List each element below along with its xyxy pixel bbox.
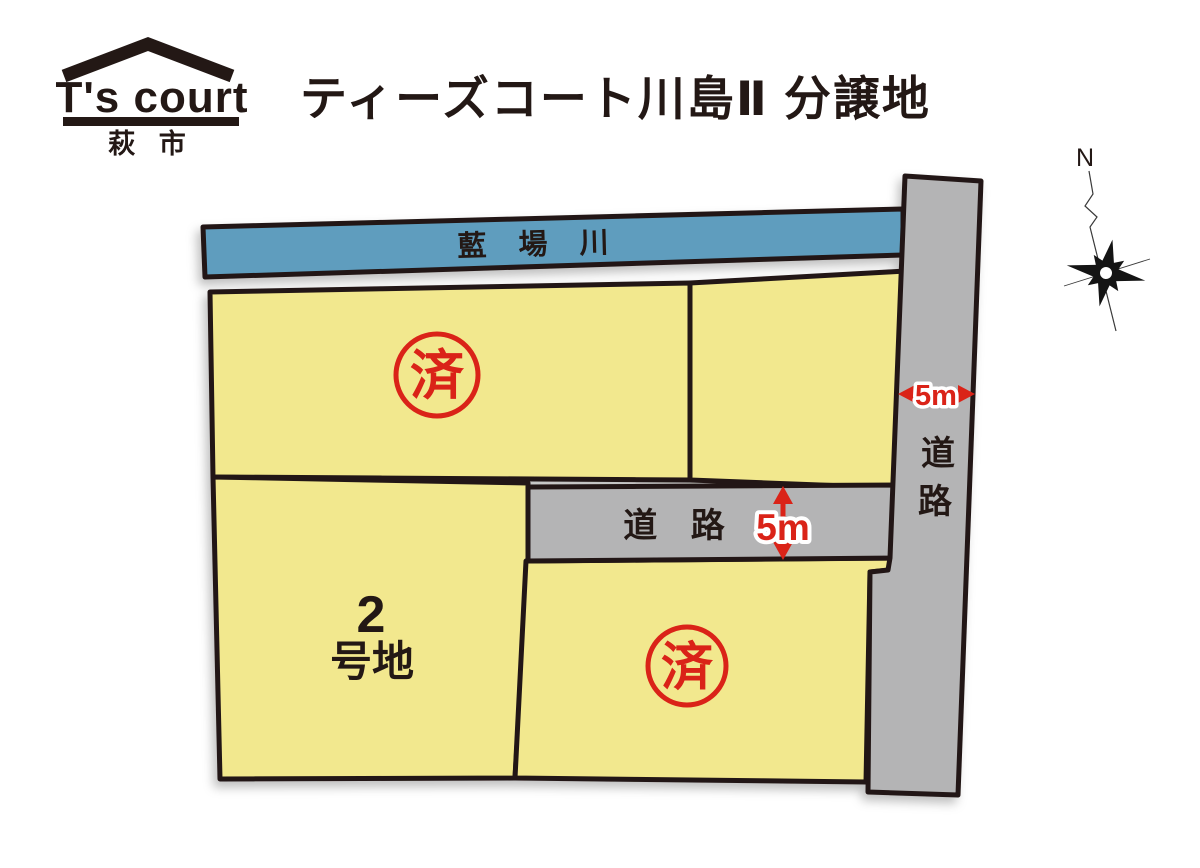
lot2-number: 2 — [357, 586, 386, 644]
road-width-label: 5m — [756, 507, 809, 548]
lot2-suffix: 号地 — [330, 638, 414, 685]
page-title: ティーズコート川島Ⅱ 分譲地 — [300, 72, 931, 125]
parcel-upper-right — [690, 271, 906, 488]
compass: N — [1060, 144, 1152, 331]
house-roof-icon — [64, 44, 232, 76]
sold-stamp-text: 済 — [410, 346, 465, 406]
subdivision-map-canvas: T's court 萩 市 ティーズコート川島Ⅱ 分譲地 藍 場 川 道 路 道… — [0, 0, 1200, 868]
compass-north-label: N — [1076, 144, 1094, 172]
road-vertical-label-char2: 路 — [918, 483, 953, 521]
river-label: 藍 場 川 — [457, 226, 621, 263]
map-shapes — [203, 176, 981, 795]
logo-underline — [63, 117, 239, 126]
road-vertical-label-char1: 道 — [921, 435, 955, 473]
logo-brand-text: T's court — [55, 73, 248, 122]
sold-stamp-text: 済 — [661, 639, 714, 697]
road-width-label: 5m — [915, 380, 957, 412]
logo-city-text: 萩 市 — [108, 128, 194, 159]
compass-rose-icon — [1060, 232, 1152, 314]
logo: T's court 萩 市 — [55, 44, 248, 159]
road-horizontal-label: 道 路 — [623, 507, 736, 545]
